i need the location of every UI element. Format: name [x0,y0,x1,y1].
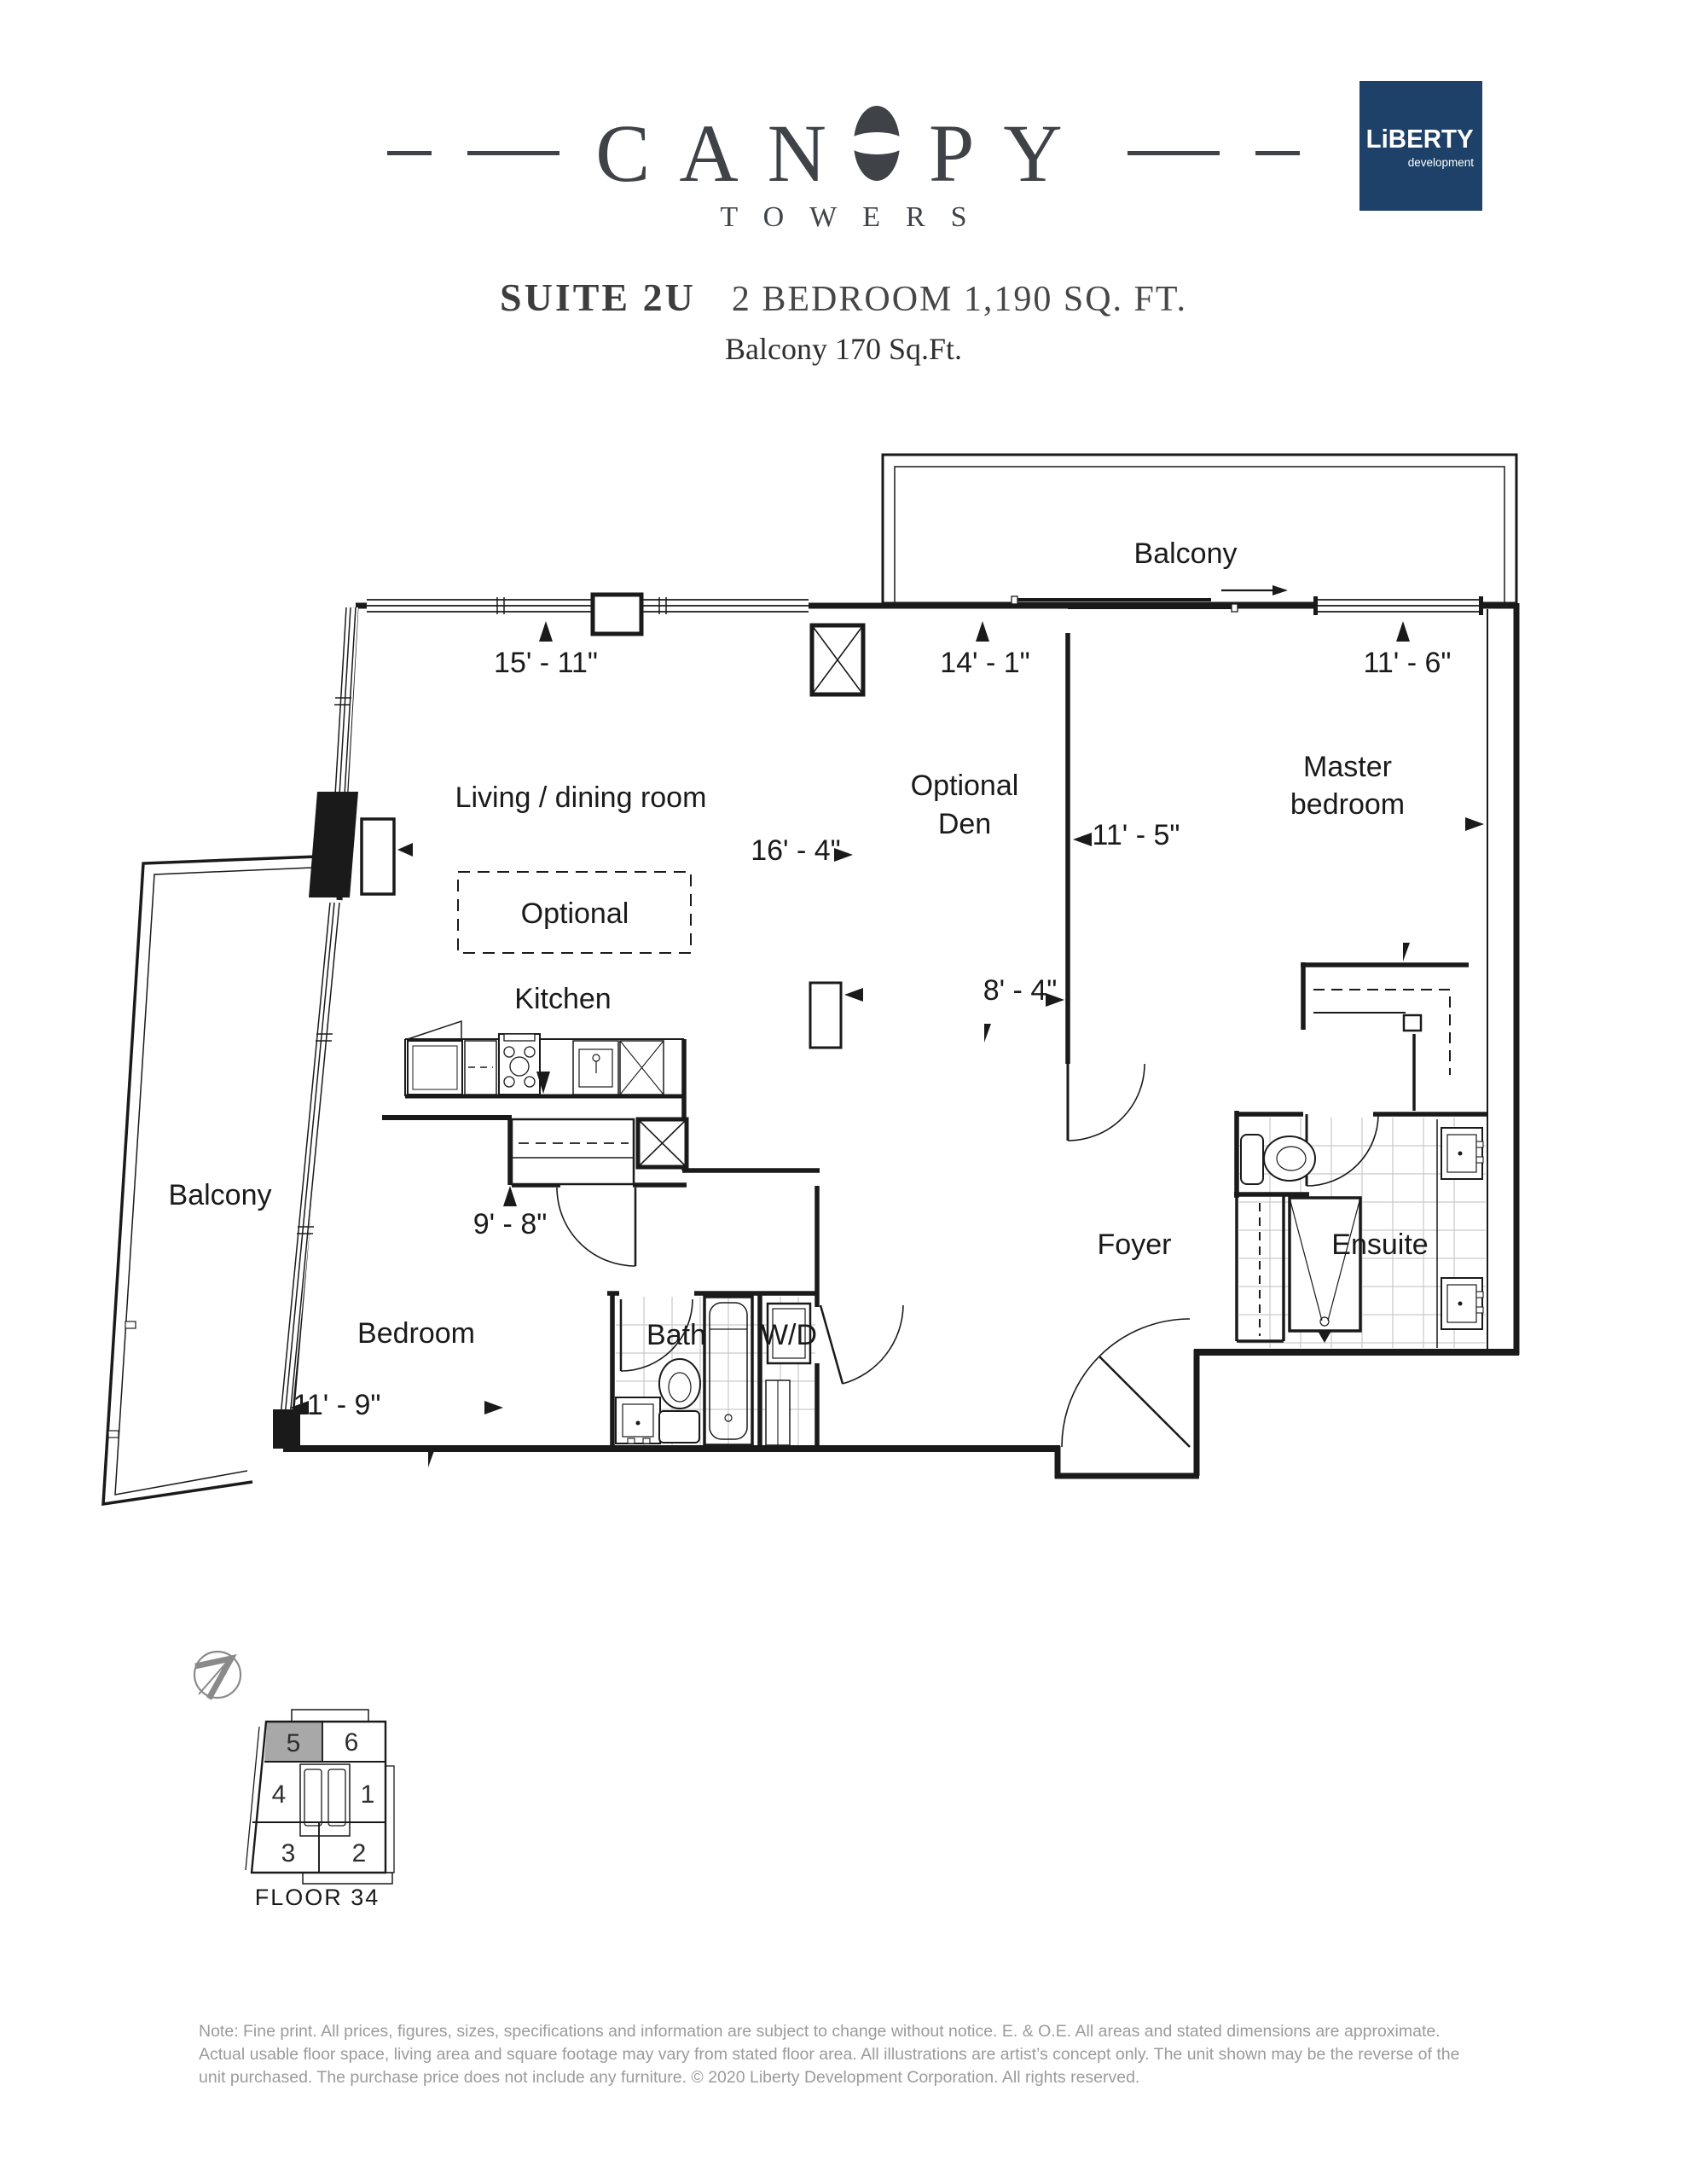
label-wd: W/D [761,1319,817,1351]
balcony-door-wall [309,792,358,897]
dim-living-width: 16' - 4" [751,834,841,867]
label-bedroom: Bedroom [357,1317,475,1350]
dim-living-top: 15' - 11" [494,647,598,679]
label-optional-den-1: Optional [911,770,1019,802]
keyplan-unit-1: 1 [361,1780,375,1809]
fine-print-line-2: Actual usable floor space, living area a… [199,2043,1470,2066]
keyplan-unit-5: 5 [287,1729,301,1757]
label-foyer: Foyer [1098,1228,1172,1261]
balcony-top-outline [883,455,1516,603]
label-master-2: bedroom [1290,788,1405,821]
slider-arrow-icon [1272,585,1288,595]
bath-vanity [616,1397,660,1443]
label-living: Living / dining room [455,781,707,814]
balcony-door-arrow-icon [397,843,413,857]
dim-master-width: 11' - 5" [1093,819,1180,851]
keyplan-unit-3: 3 [281,1839,296,1867]
keyplan: 5 6 4 1 3 2 FLOOR 34 [246,1710,394,1910]
fine-print: Note: Fine print. All prices, figures, s… [199,2020,1470,2089]
stove [499,1034,540,1095]
column [593,595,641,634]
keyplan-unit-6: 6 [345,1728,359,1757]
label-bath: Bath [646,1319,706,1351]
bath-toilet [659,1359,700,1443]
fine-print-line-1: Note: Fine print. All prices, figures, s… [199,2020,1470,2043]
kitchen-island [512,1119,634,1184]
shaft-box [812,625,863,694]
keyplan-unit-4: 4 [272,1780,287,1809]
room-labels: Balcony Living / dining room Optional De… [169,537,1429,1351]
balcony-door-leaf [362,819,394,894]
dim-bedroom-width: 11' - 9" [293,1389,381,1421]
keyplan-floor-label: FLOOR 34 [255,1885,380,1910]
kitchen-sink [573,1041,618,1095]
dishwasher [620,1041,664,1095]
ensuite-shower [1290,1198,1360,1343]
keyplan-unit-2: 2 [352,1839,367,1867]
dim-den-top: 14' - 1" [940,647,1030,679]
dimension-labels: 15' - 11" 14' - 1" 11' - 6" 16' - 4" 11'… [293,647,1452,1421]
ensuite-sink-2 [1441,1278,1483,1329]
kitchen-counter [405,1021,687,1184]
label-kitchen: Kitchen [514,983,611,1015]
label-optional-kitchen: Optional [521,897,629,930]
dim-master-top: 11' - 6" [1364,647,1452,679]
label-optional-den-2: Den [938,808,991,840]
fine-print-line-3: unit purchased. The purchase price does … [199,2066,1470,2089]
ensuite-sink-1 [1441,1128,1483,1179]
den-wall-stub [810,983,863,1048]
dim-den-width: 8' - 4" [983,974,1058,1007]
label-ensuite: Ensuite [1331,1228,1428,1261]
column-x-box [638,1119,687,1167]
label-balcony-top: Balcony [1134,537,1238,570]
keyplan-unit-numbers: 5 6 4 1 3 2 [272,1728,375,1867]
label-balcony-left: Balcony [169,1179,272,1211]
north-arrow-icon [194,1652,241,1699]
ensuite-toilet [1241,1135,1315,1184]
floorplan-drawing: Balcony Living / dining room Optional De… [0,0,1687,2184]
label-master-1: Master [1303,751,1392,783]
dim-kitchen-width: 9' - 8" [473,1208,548,1240]
